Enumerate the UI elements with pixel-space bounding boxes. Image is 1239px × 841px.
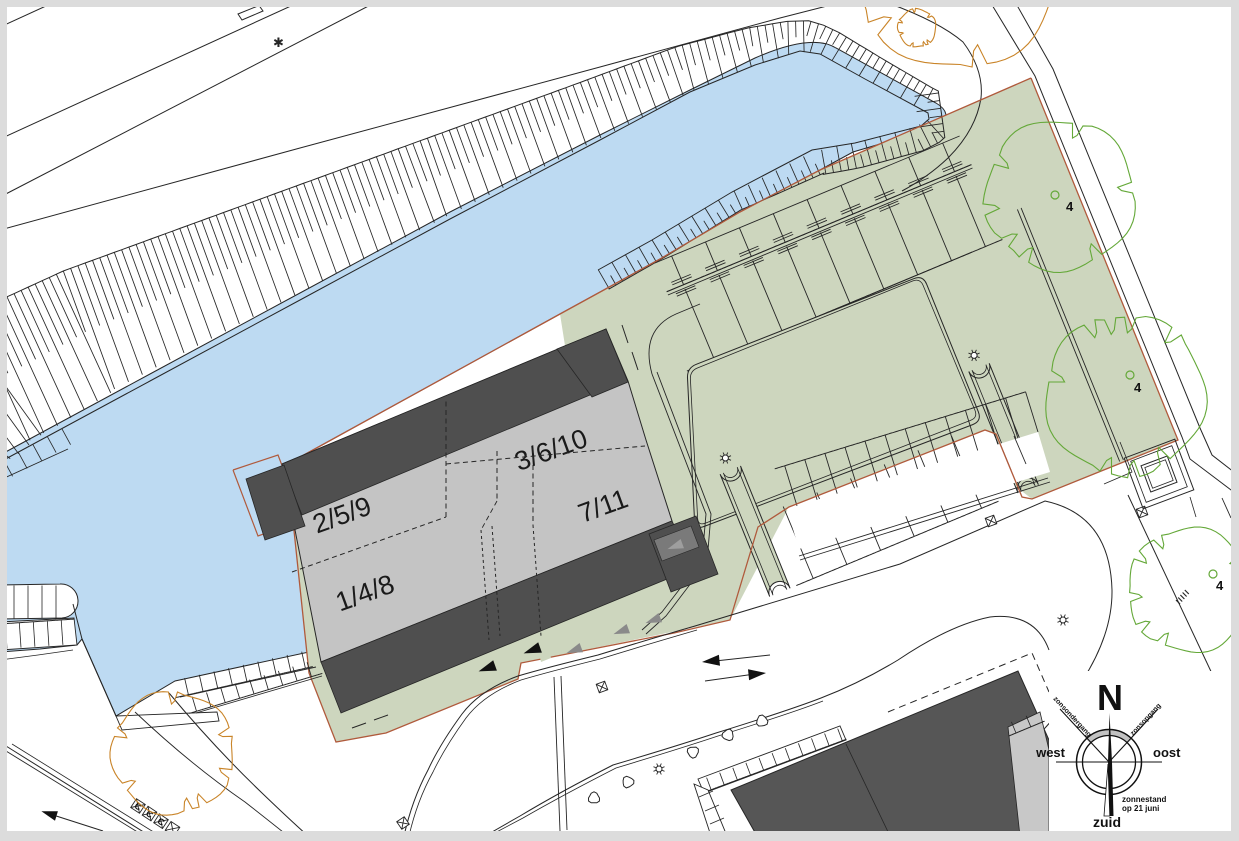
svg-text:✱: ✱ [273,35,284,50]
svg-text:4: 4 [1216,578,1224,593]
svg-text:zuid: zuid [1093,814,1121,830]
svg-text:4: 4 [1066,199,1074,214]
svg-text:N: N [1097,677,1123,718]
svg-text:op 21 juni: op 21 juni [1122,804,1159,813]
svg-text:west: west [1035,745,1066,760]
svg-text:4: 4 [1134,380,1142,395]
svg-text:zonnestand: zonnestand [1122,795,1167,804]
svg-text:oost: oost [1153,745,1181,760]
